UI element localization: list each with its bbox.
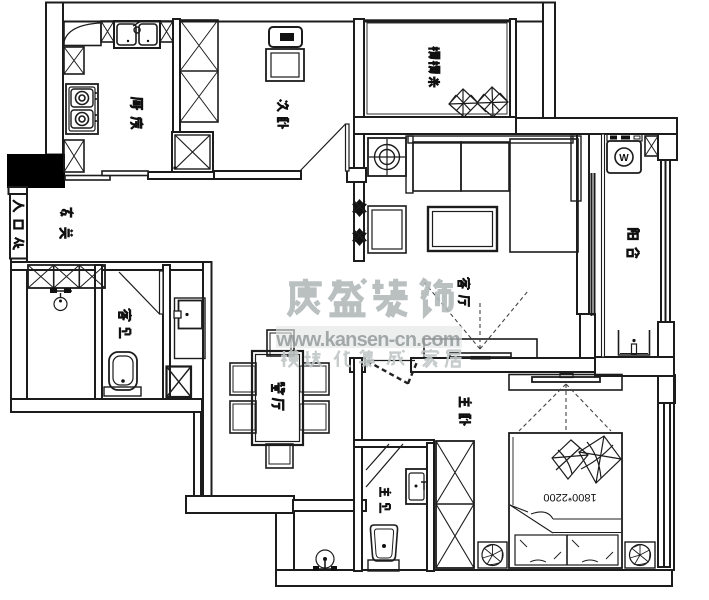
svg-text:1800*2200: 1800*2200 <box>543 491 596 503</box>
svg-text:www.kansen-cn.com: www.kansen-cn.com <box>275 329 460 351</box>
svg-text:W: W <box>619 153 629 164</box>
